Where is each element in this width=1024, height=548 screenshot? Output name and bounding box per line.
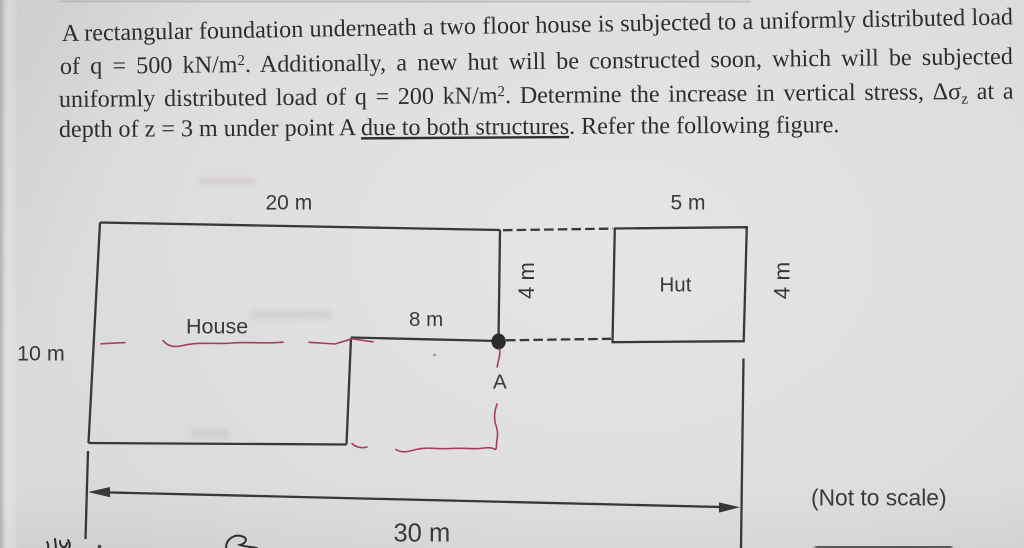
svg-text:4 m: 4 m: [770, 262, 795, 300]
svg-text:of q = 500 kN/m2. Additionally: of q = 500 kN/m2. Additionally, a new hu…: [60, 44, 1013, 80]
svg-text:uniformly distributed load of: uniformly distributed load of q = 200 kN…: [59, 79, 1014, 116]
svg-text:A: A: [493, 371, 507, 394]
svg-text:A rectangular foundation under: A rectangular foundation underneath a tw…: [62, 4, 1014, 47]
svg-text:Hut: Hut: [660, 274, 692, 297]
svg-text:30 m: 30 m: [394, 520, 451, 548]
svg-text:House: House: [186, 315, 248, 339]
svg-text:8 m: 8 m: [409, 308, 443, 331]
svg-text:depth of z = 3 m under point A: depth of z = 3 m under point A due to bo…: [59, 112, 840, 143]
svg-text:10 m: 10 m: [17, 342, 65, 366]
svg-text:4 m: 4 m: [514, 262, 539, 299]
svg-text:5 m: 5 m: [671, 192, 706, 215]
svg-text:20 m: 20 m: [266, 192, 313, 215]
svg-text:(Not to scale): (Not to scale): [811, 485, 947, 511]
